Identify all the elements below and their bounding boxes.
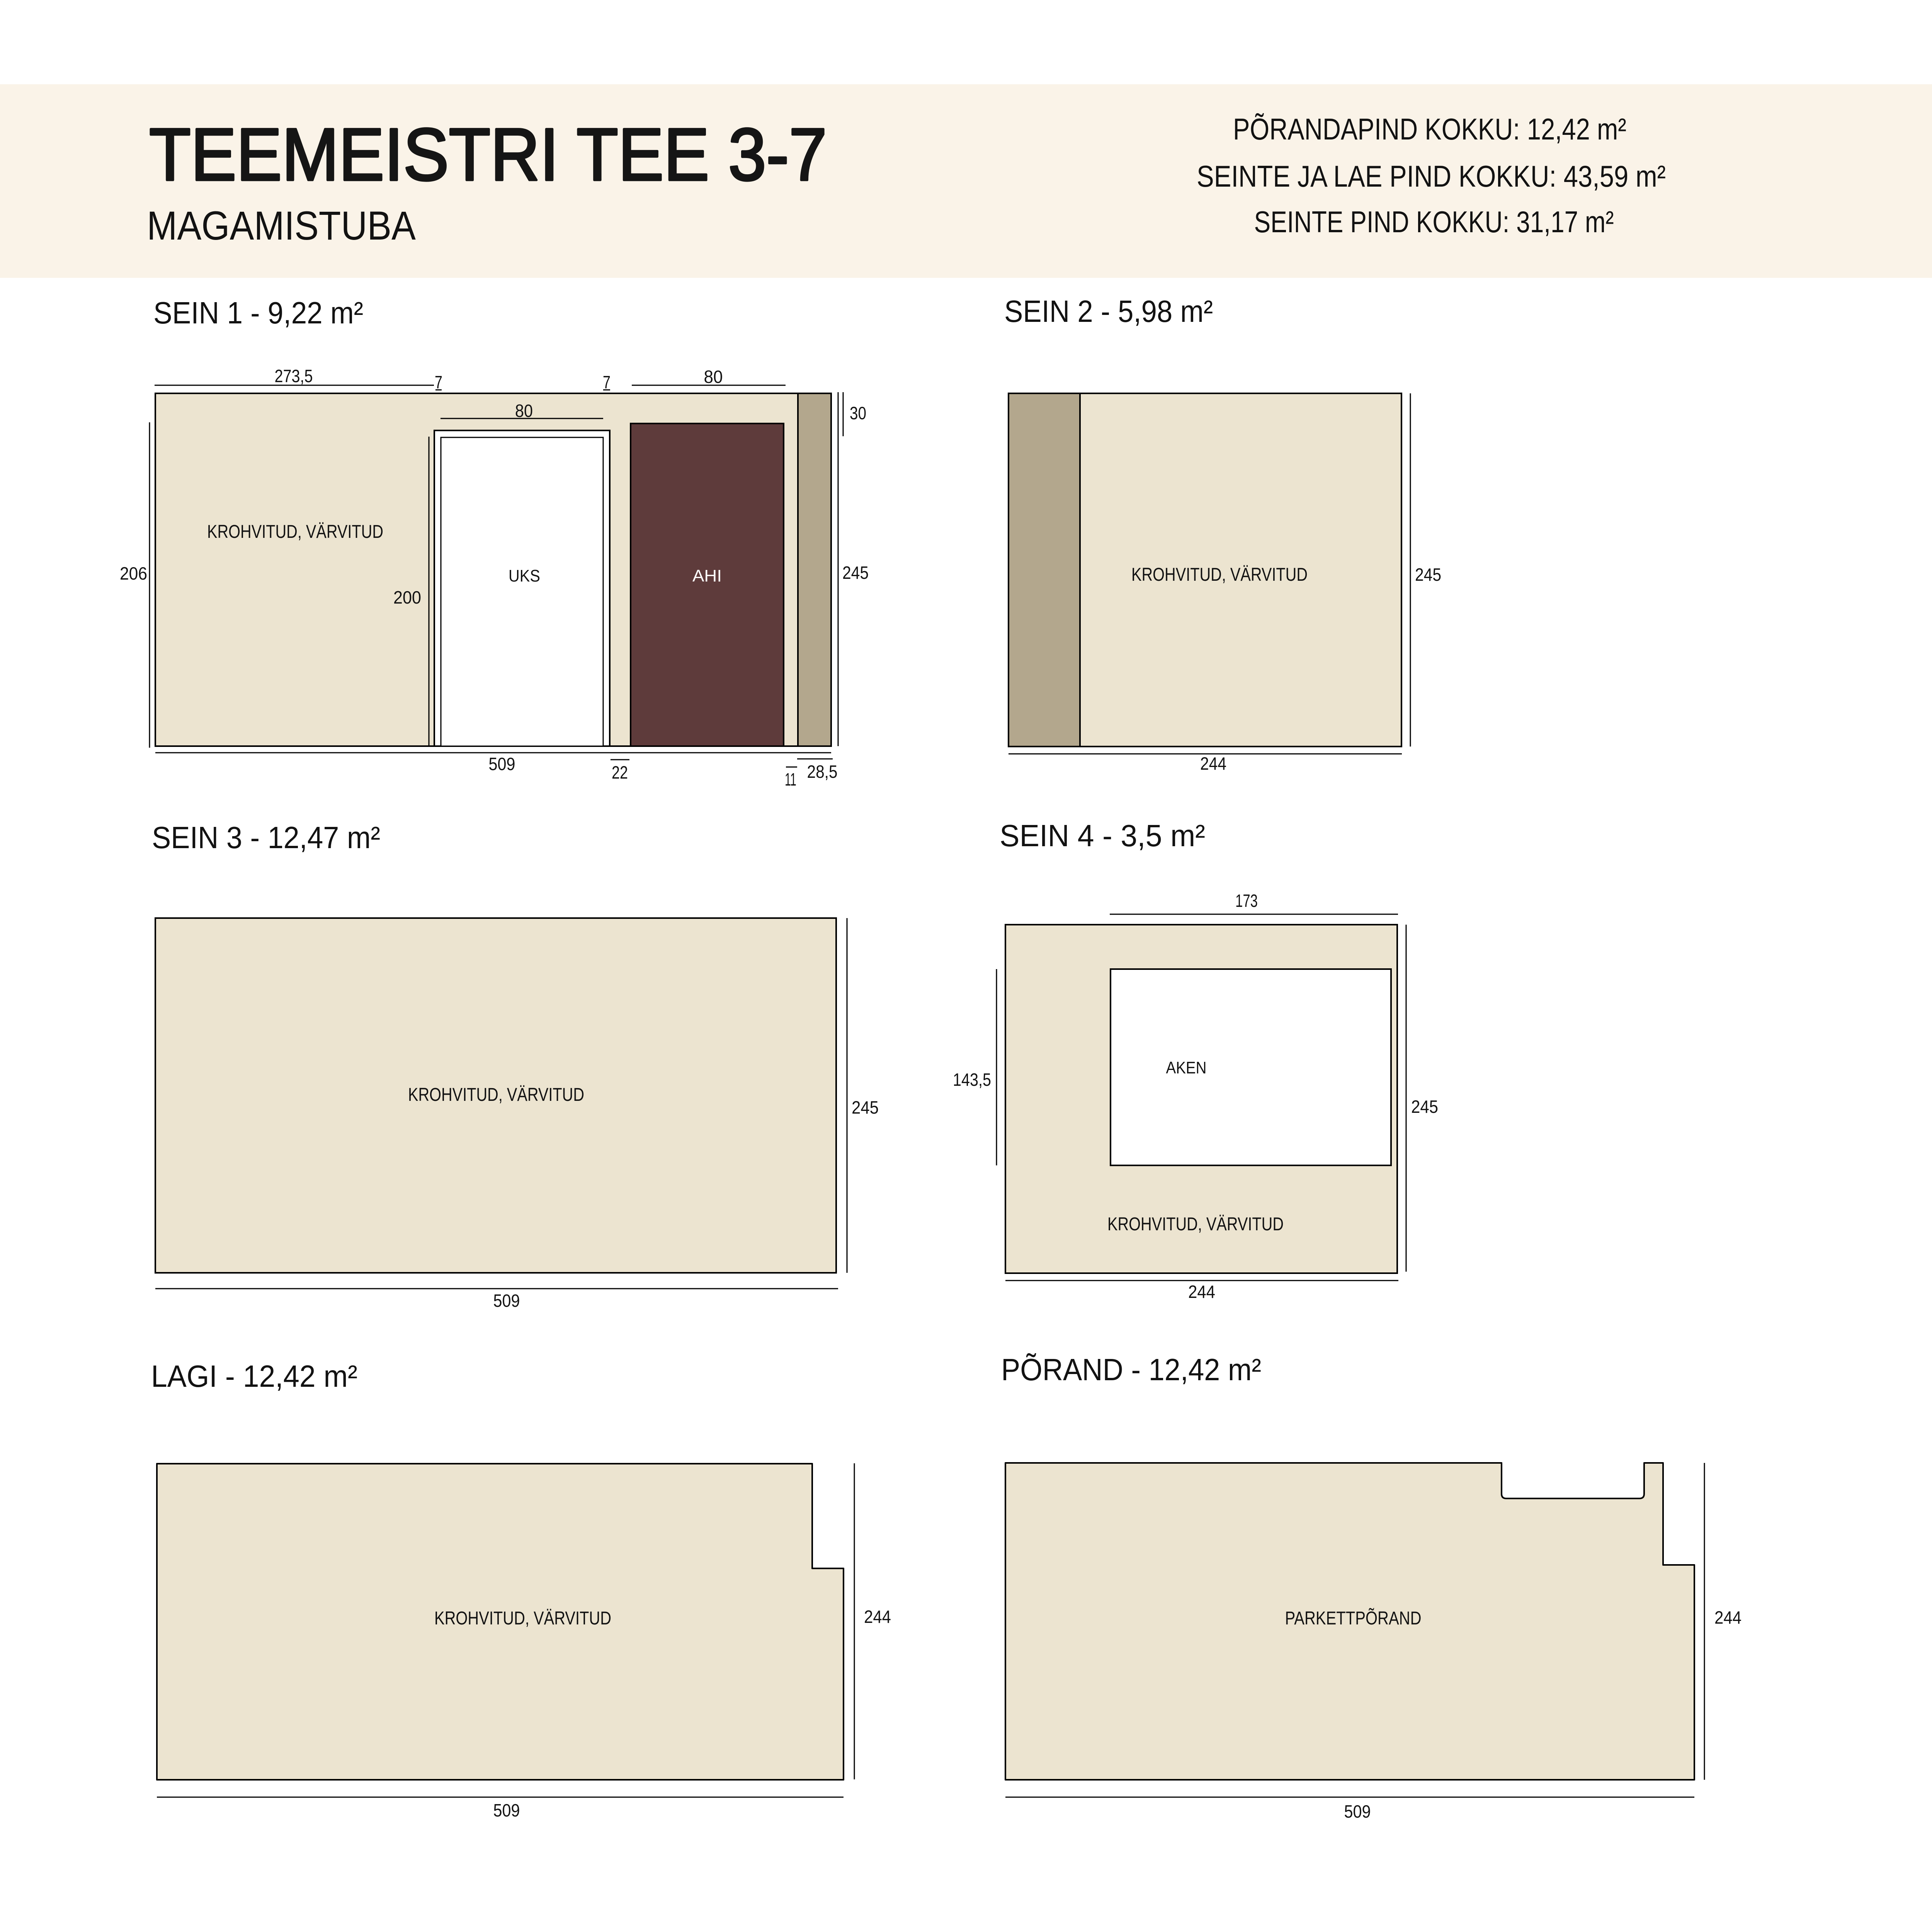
svg-text:SEINTE PIND KOKKU: 31,17 m²: SEINTE PIND KOKKU: 31,17 m² bbox=[1254, 205, 1614, 239]
svg-text:KROHVITUD, VÄRVITUD: KROHVITUD, VÄRVITUD bbox=[1107, 1214, 1284, 1235]
svg-text:TEEMEISTRI TEE 3-7: TEEMEISTRI TEE 3-7 bbox=[149, 113, 827, 196]
svg-text:509: 509 bbox=[493, 1291, 520, 1311]
svg-text:509: 509 bbox=[1344, 1801, 1371, 1821]
svg-text:MAGAMISTUBA: MAGAMISTUBA bbox=[147, 203, 416, 248]
svg-text:AKEN: AKEN bbox=[1166, 1058, 1207, 1077]
svg-text:PÕRANDAPIND KOKKU: 12,42 m²: PÕRANDAPIND KOKKU: 12,42 m² bbox=[1233, 112, 1626, 146]
svg-text:206: 206 bbox=[120, 563, 147, 583]
svg-text:244: 244 bbox=[1200, 753, 1226, 774]
svg-text:200: 200 bbox=[393, 587, 421, 607]
svg-text:KROHVITUD, VÄRVITUD: KROHVITUD, VÄRVITUD bbox=[408, 1085, 584, 1105]
svg-text:245: 245 bbox=[1415, 565, 1441, 585]
svg-text:143,5: 143,5 bbox=[953, 1070, 991, 1090]
svg-text:245: 245 bbox=[852, 1097, 879, 1117]
svg-text:80: 80 bbox=[704, 367, 723, 387]
svg-text:245: 245 bbox=[842, 563, 869, 583]
svg-text:KROHVITUD, VÄRVITUD: KROHVITUD, VÄRVITUD bbox=[207, 522, 383, 542]
svg-text:KROHVITUD, VÄRVITUD: KROHVITUD, VÄRVITUD bbox=[434, 1608, 611, 1629]
svg-text:PARKETTPÕRAND: PARKETTPÕRAND bbox=[1285, 1608, 1422, 1629]
svg-text:244: 244 bbox=[1714, 1607, 1742, 1628]
svg-text:509: 509 bbox=[493, 1800, 520, 1820]
svg-text:80: 80 bbox=[515, 401, 533, 421]
svg-text:SEIN 4 - 3,5 m²: SEIN 4 - 3,5 m² bbox=[1000, 818, 1205, 853]
svg-text:273,5: 273,5 bbox=[275, 366, 313, 386]
svg-text:244: 244 bbox=[864, 1607, 891, 1627]
svg-text:KROHVITUD, VÄRVITUD: KROHVITUD, VÄRVITUD bbox=[1131, 565, 1308, 585]
svg-text:244: 244 bbox=[1188, 1282, 1215, 1302]
svg-text:173: 173 bbox=[1235, 891, 1258, 911]
svg-text:7: 7 bbox=[603, 372, 611, 392]
svg-text:245: 245 bbox=[1411, 1097, 1438, 1117]
svg-text:UKS: UKS bbox=[509, 566, 540, 585]
svg-text:7: 7 bbox=[435, 372, 442, 392]
svg-text:11: 11 bbox=[785, 769, 796, 789]
svg-text:509: 509 bbox=[489, 754, 515, 774]
svg-text:22: 22 bbox=[612, 762, 628, 782]
svg-text:SEIN 3 - 12,47 m²: SEIN 3 - 12,47 m² bbox=[152, 820, 380, 855]
svg-text:SEINTE JA LAE PIND KOKKU: 43,5: SEINTE JA LAE PIND KOKKU: 43,59 m² bbox=[1197, 159, 1666, 193]
svg-text:PÕRAND - 12,42 m²: PÕRAND - 12,42 m² bbox=[1001, 1352, 1261, 1387]
svg-text:30: 30 bbox=[850, 403, 866, 423]
svg-text:SEIN 1 - 9,22 m²: SEIN 1 - 9,22 m² bbox=[153, 296, 363, 330]
svg-text:SEIN 2 - 5,98 m²: SEIN 2 - 5,98 m² bbox=[1004, 294, 1213, 328]
svg-text:LAGI - 12,42 m²: LAGI - 12,42 m² bbox=[151, 1359, 357, 1393]
svg-text:AHI: AHI bbox=[692, 566, 722, 585]
svg-text:28,5: 28,5 bbox=[807, 762, 838, 782]
